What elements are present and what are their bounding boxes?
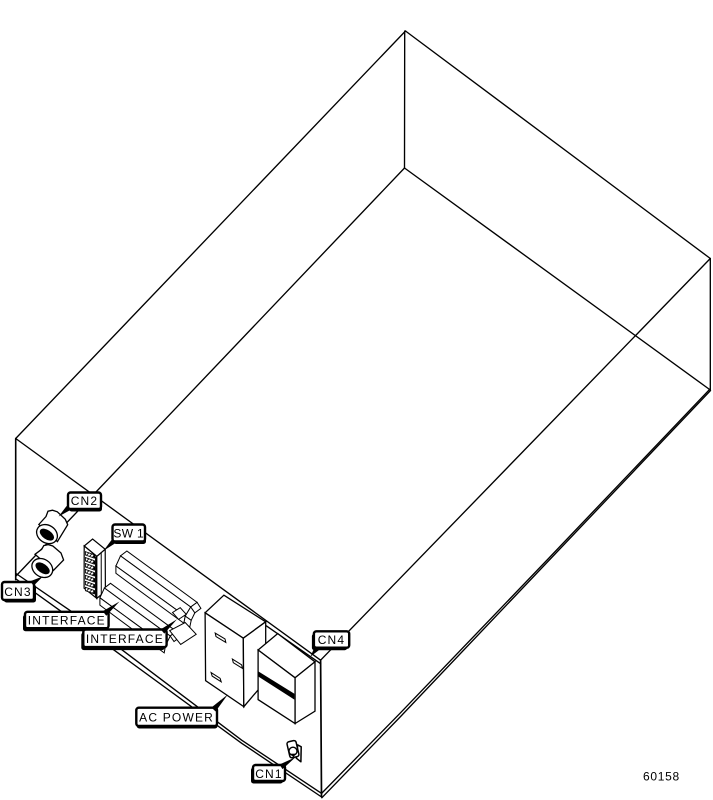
svg-text:CN2: CN2	[71, 494, 99, 508]
svg-text:60158: 60158	[643, 770, 680, 784]
svg-text:CN4: CN4	[318, 633, 346, 647]
svg-text:CN3: CN3	[4, 585, 32, 599]
svg-text:INTERFACE: INTERFACE	[28, 614, 106, 628]
svg-text:SW 1: SW 1	[113, 527, 144, 541]
svg-text:INTERFACE: INTERFACE	[86, 632, 164, 646]
svg-text:AC POWER: AC POWER	[139, 710, 214, 724]
svg-text:CN1: CN1	[255, 767, 283, 781]
